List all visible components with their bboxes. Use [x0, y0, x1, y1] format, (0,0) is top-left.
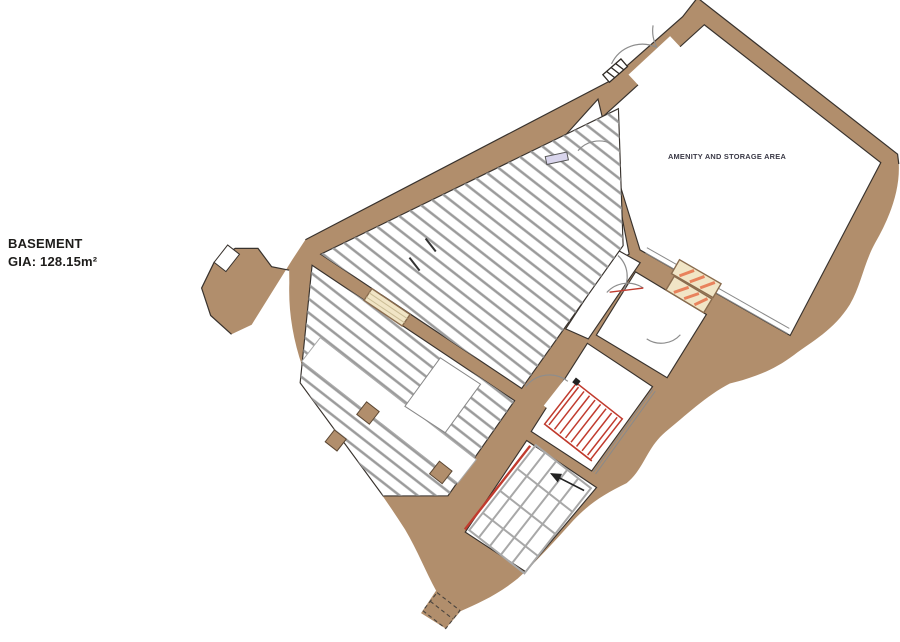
floor-plan-page: BASEMENT GIA: 128.15m² AMENITY AND STORA… — [0, 0, 900, 642]
page-title: BASEMENT — [8, 236, 83, 251]
amenity-room-label: AMENITY AND STORAGE AREA — [668, 152, 787, 161]
gia-value: GIA: 128.15m² — [8, 254, 98, 269]
floor-plan-canvas: BASEMENT GIA: 128.15m² AMENITY AND STORA… — [0, 0, 900, 642]
plan-rotated-group — [122, 0, 900, 642]
